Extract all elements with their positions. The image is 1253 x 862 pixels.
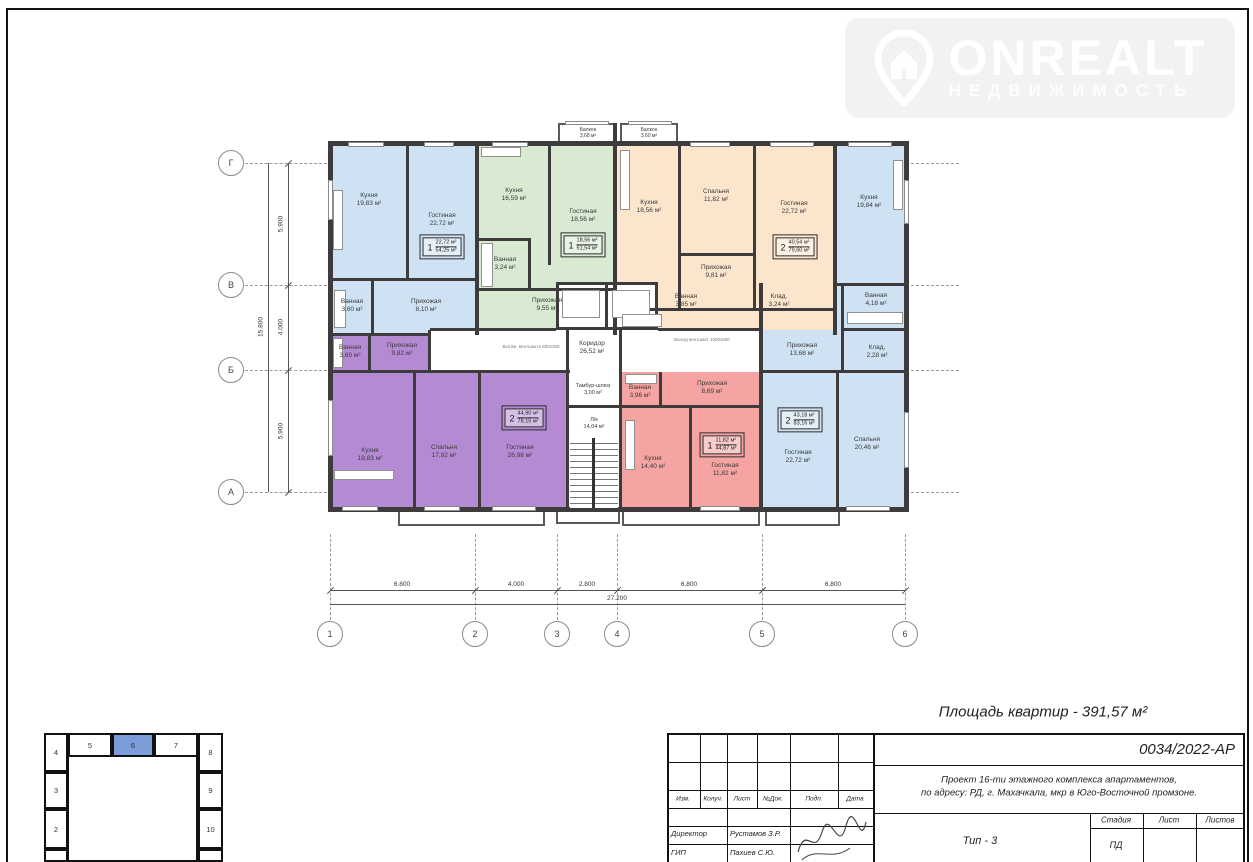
bathtub: [847, 312, 903, 324]
wall: [658, 328, 762, 331]
title-block-line: [727, 733, 728, 862]
axis-col-bubble: 2: [462, 621, 488, 647]
axis-col-bubble: 6: [892, 621, 918, 647]
key-plan-block: [198, 849, 223, 862]
sheet-header: Лист: [1159, 816, 1180, 825]
wall: [566, 330, 569, 510]
key-plan-block: 10: [198, 809, 223, 849]
tb-role: ГИП: [671, 848, 686, 857]
kitchen-counter: [334, 470, 394, 480]
window: [690, 142, 730, 147]
key-plan-block: 8: [198, 733, 223, 772]
room-label: Гостиная11,82 м²: [711, 462, 738, 478]
title-block-line: [667, 762, 873, 763]
wall: [835, 283, 907, 286]
kitchen-counter: [481, 147, 521, 157]
tb-name: Рустамов З.Р.: [730, 829, 781, 838]
key-plan-block: 2: [44, 809, 68, 849]
dimension-value: 4.000: [278, 319, 285, 335]
room-label: Клад.2,28 м²: [866, 344, 887, 360]
title-block-line: [1090, 828, 1245, 829]
staircase-divider: [592, 438, 595, 508]
room-label: Спальня17,92 м²: [431, 444, 457, 460]
wall: [430, 328, 556, 331]
room-label: Ванная3,96 м²: [629, 384, 651, 400]
tb-role: Директор: [671, 829, 707, 838]
title-block-line: [873, 765, 1245, 766]
bathtub: [625, 374, 657, 384]
room-label: Прихожая9,81 м²: [701, 264, 731, 280]
wall: [678, 253, 755, 256]
wall: [833, 143, 837, 335]
dimension-value: 5.900: [278, 216, 285, 232]
tb-col-header: Дата: [846, 796, 863, 803]
room-label: Ванная3,60 м²: [339, 344, 361, 360]
wall: [371, 281, 374, 335]
bathtub: [622, 314, 662, 327]
axis-line: [617, 534, 618, 620]
apartment-stamp: 1 11,82 м²44,87 м²: [703, 435, 742, 454]
room-label: Ванная3,24 м²: [494, 256, 516, 272]
apartment-stamp: 2 40,54 м²79,60 м²: [776, 237, 815, 256]
kitchen-counter: [893, 160, 903, 210]
dimension-value: 6.800: [394, 581, 410, 588]
vent-shaft-label: Вытяж. вентшахта 600х300: [503, 344, 560, 350]
window: [424, 506, 460, 511]
room-label: Кухня14,40 м²: [641, 455, 666, 471]
window: [700, 506, 740, 511]
title-block-line: [667, 790, 873, 791]
window: [770, 142, 814, 147]
stair-label: Л/к14,04 м²: [584, 417, 605, 431]
dimension-value: 6.800: [681, 581, 697, 588]
room-label: Прихожая9,55 м²: [532, 297, 562, 313]
wall: [478, 372, 481, 510]
title-block-line: [700, 733, 701, 808]
dimension-line: [288, 163, 289, 492]
room-label: Гостиная22,72 м²: [428, 212, 455, 228]
dimension-total: 27.200: [607, 595, 627, 602]
room-label: Кухня19,84 м²: [857, 194, 882, 210]
room-label: Спальня20,46 м²: [854, 436, 880, 452]
wall: [478, 238, 531, 241]
apartment-stamp: 1 22,72 м²54,25 м²: [423, 237, 462, 256]
stage-header: Стадия: [1101, 816, 1131, 825]
wall: [843, 328, 907, 331]
window: [565, 121, 609, 125]
sheets-header: Листов: [1205, 816, 1234, 825]
dimension-value: 2.800: [579, 581, 595, 588]
room-label: Кухня16,59 м²: [502, 187, 527, 203]
apartment-stamp: 2 43,18 м²83,16 м²: [781, 410, 820, 429]
wall: [330, 370, 570, 373]
room-label: Кухня19,83 м²: [358, 447, 383, 463]
dimension-value: 15.800: [258, 317, 265, 337]
wall: [548, 143, 551, 265]
axis-line: [557, 534, 558, 620]
project-title-line2: по адресу: РД, г. Махачкала, мкр в Юго-В…: [921, 788, 1197, 799]
axis-line: [762, 534, 763, 620]
project-title-line1: Проект 16-ти этажного комплекса апартаме…: [941, 775, 1177, 786]
key-plan-block: [44, 849, 68, 862]
axis-col-bubble: 4: [604, 621, 630, 647]
vent-shaft-label: Выход вентшахт 1000х600: [674, 337, 730, 343]
kitchen-counter: [333, 190, 343, 250]
elevator-car: [562, 290, 600, 318]
wall: [678, 143, 681, 310]
room-label: Гостиная22,72 м²: [784, 449, 811, 465]
axis-line: [475, 534, 476, 620]
axis-row-bubble: А: [218, 479, 244, 505]
bathtub: [481, 243, 493, 287]
window: [628, 121, 672, 125]
wall: [753, 143, 756, 310]
tb-col-header: Лист: [734, 796, 751, 803]
wall: [406, 143, 409, 280]
apartment-stamp: 2 44,90 м²78,15 м²: [505, 408, 544, 427]
window: [348, 142, 384, 147]
balcony-label: Балкон3,68 м²: [580, 127, 597, 140]
room-label: Ванная4,18 м²: [865, 292, 887, 308]
room-label: Кухня18,56 м²: [637, 199, 662, 215]
key-plan-block: 7: [154, 733, 198, 757]
wall: [528, 241, 531, 291]
window: [342, 506, 378, 511]
axis-line: [911, 492, 959, 493]
room-label: Ванная3,85 м²: [675, 293, 697, 309]
tambour-label: Тамбур-шлюз3,00 м²: [576, 383, 611, 397]
axis-line: [330, 534, 331, 620]
logo-brand-text: ONREALT: [949, 36, 1208, 81]
kitchen-counter: [620, 150, 630, 210]
dimension-line: [330, 604, 905, 605]
axis-row-bubble: Г: [218, 150, 244, 176]
wall: [330, 278, 478, 281]
dimension-value: 5.900: [278, 423, 285, 439]
key-plan-block: 9: [198, 772, 223, 809]
title-block-line: [757, 733, 758, 808]
key-plan-block: 4: [44, 733, 68, 772]
axis-line: [911, 370, 959, 371]
tb-col-header: Изм.: [676, 796, 690, 803]
wall: [330, 333, 430, 336]
room-label: Прихожая13,68 м²: [787, 342, 817, 358]
stage-value: ПД: [1110, 840, 1123, 850]
axis-line: [911, 285, 959, 286]
balcony-label: Балкон3,60 м²: [641, 127, 658, 140]
window: [848, 142, 892, 147]
wall: [622, 405, 762, 408]
room-label: Кухня19,83 м²: [357, 192, 382, 208]
room-label: Гостиная22,72 м²: [780, 200, 807, 216]
type-label: Тип - 3: [963, 835, 997, 847]
window: [904, 180, 909, 224]
wall: [762, 370, 907, 373]
room-label: Гостиная26,98 м²: [506, 444, 533, 460]
key-plan-block: 3: [44, 772, 68, 809]
room-label: Ванная3,60 м²: [341, 298, 363, 314]
dimension-line: [268, 163, 269, 492]
axis-line: [911, 163, 959, 164]
room-label: Прихожая8,10 м²: [411, 298, 441, 314]
wall: [689, 408, 692, 510]
window: [846, 506, 890, 511]
title-block-line: [790, 733, 791, 862]
apartment-stamp: 1 18,56 м²51,54 м²: [564, 235, 603, 254]
key-plan-courtyard: [67, 755, 198, 862]
wall: [836, 373, 839, 510]
axis-row-bubble: В: [218, 272, 244, 298]
title-block-line: [1143, 813, 1144, 862]
axis-col-bubble: 3: [544, 621, 570, 647]
title-block-line: [667, 808, 873, 809]
axis-col-bubble: 1: [317, 621, 343, 647]
logo-tagline-text: НЕДВИЖИМОСТЬ: [949, 81, 1208, 101]
onrealt-logo: ONREALT НЕДВИЖИМОСТЬ: [845, 18, 1235, 118]
room-label: Гостиная18,56 м²: [569, 208, 596, 224]
axis-col-bubble: 5: [749, 621, 775, 647]
doc-number: 0034/2022-АР: [1139, 741, 1235, 758]
wall: [759, 283, 763, 510]
corridor-label: Коридор26,52 м²: [579, 340, 605, 356]
wall: [368, 335, 371, 372]
window: [328, 400, 333, 456]
wall: [619, 330, 622, 510]
signature: [792, 812, 870, 862]
title-block-line: [873, 733, 875, 862]
wall: [605, 282, 608, 330]
window: [904, 412, 909, 468]
title-block-line: [1090, 813, 1091, 862]
wall: [413, 372, 416, 510]
key-plan-block-highlighted: 6: [112, 733, 154, 757]
kitchen-counter: [625, 420, 635, 470]
axis-line: [905, 534, 906, 620]
tb-col-header: №Док.: [763, 796, 783, 803]
title-block-line: [838, 733, 839, 808]
room-label: Клад.3,24 м²: [768, 293, 789, 309]
drawing-sheet: ONREALT НЕДВИЖИМОСТЬ: [0, 0, 1253, 862]
axis-row-bubble: Б: [218, 357, 244, 383]
dimension-value: 4.000: [508, 581, 524, 588]
area-summary: Площадь квартир - 391,57 м²: [939, 704, 1147, 721]
room-label: Прихожая9,82 м²: [387, 342, 417, 358]
tb-col-header: Подп.: [805, 796, 822, 803]
tb-col-header: Колуч.: [703, 796, 722, 803]
logo-pin-house-icon: [873, 29, 935, 107]
window: [492, 506, 536, 511]
wall: [428, 330, 431, 372]
title-block-line: [873, 813, 1245, 814]
key-plan-block: 5: [68, 733, 112, 757]
title-block-line: [1196, 813, 1197, 862]
room-label: Спальня11,82 м²: [703, 188, 729, 204]
dimension-value: 6.800: [825, 581, 841, 588]
wall: [568, 405, 620, 408]
window: [424, 142, 454, 147]
room-label: Прихожая8,69 м²: [697, 380, 727, 396]
wall: [659, 372, 662, 408]
tb-name: Пахиев С.Ю.: [730, 848, 775, 857]
